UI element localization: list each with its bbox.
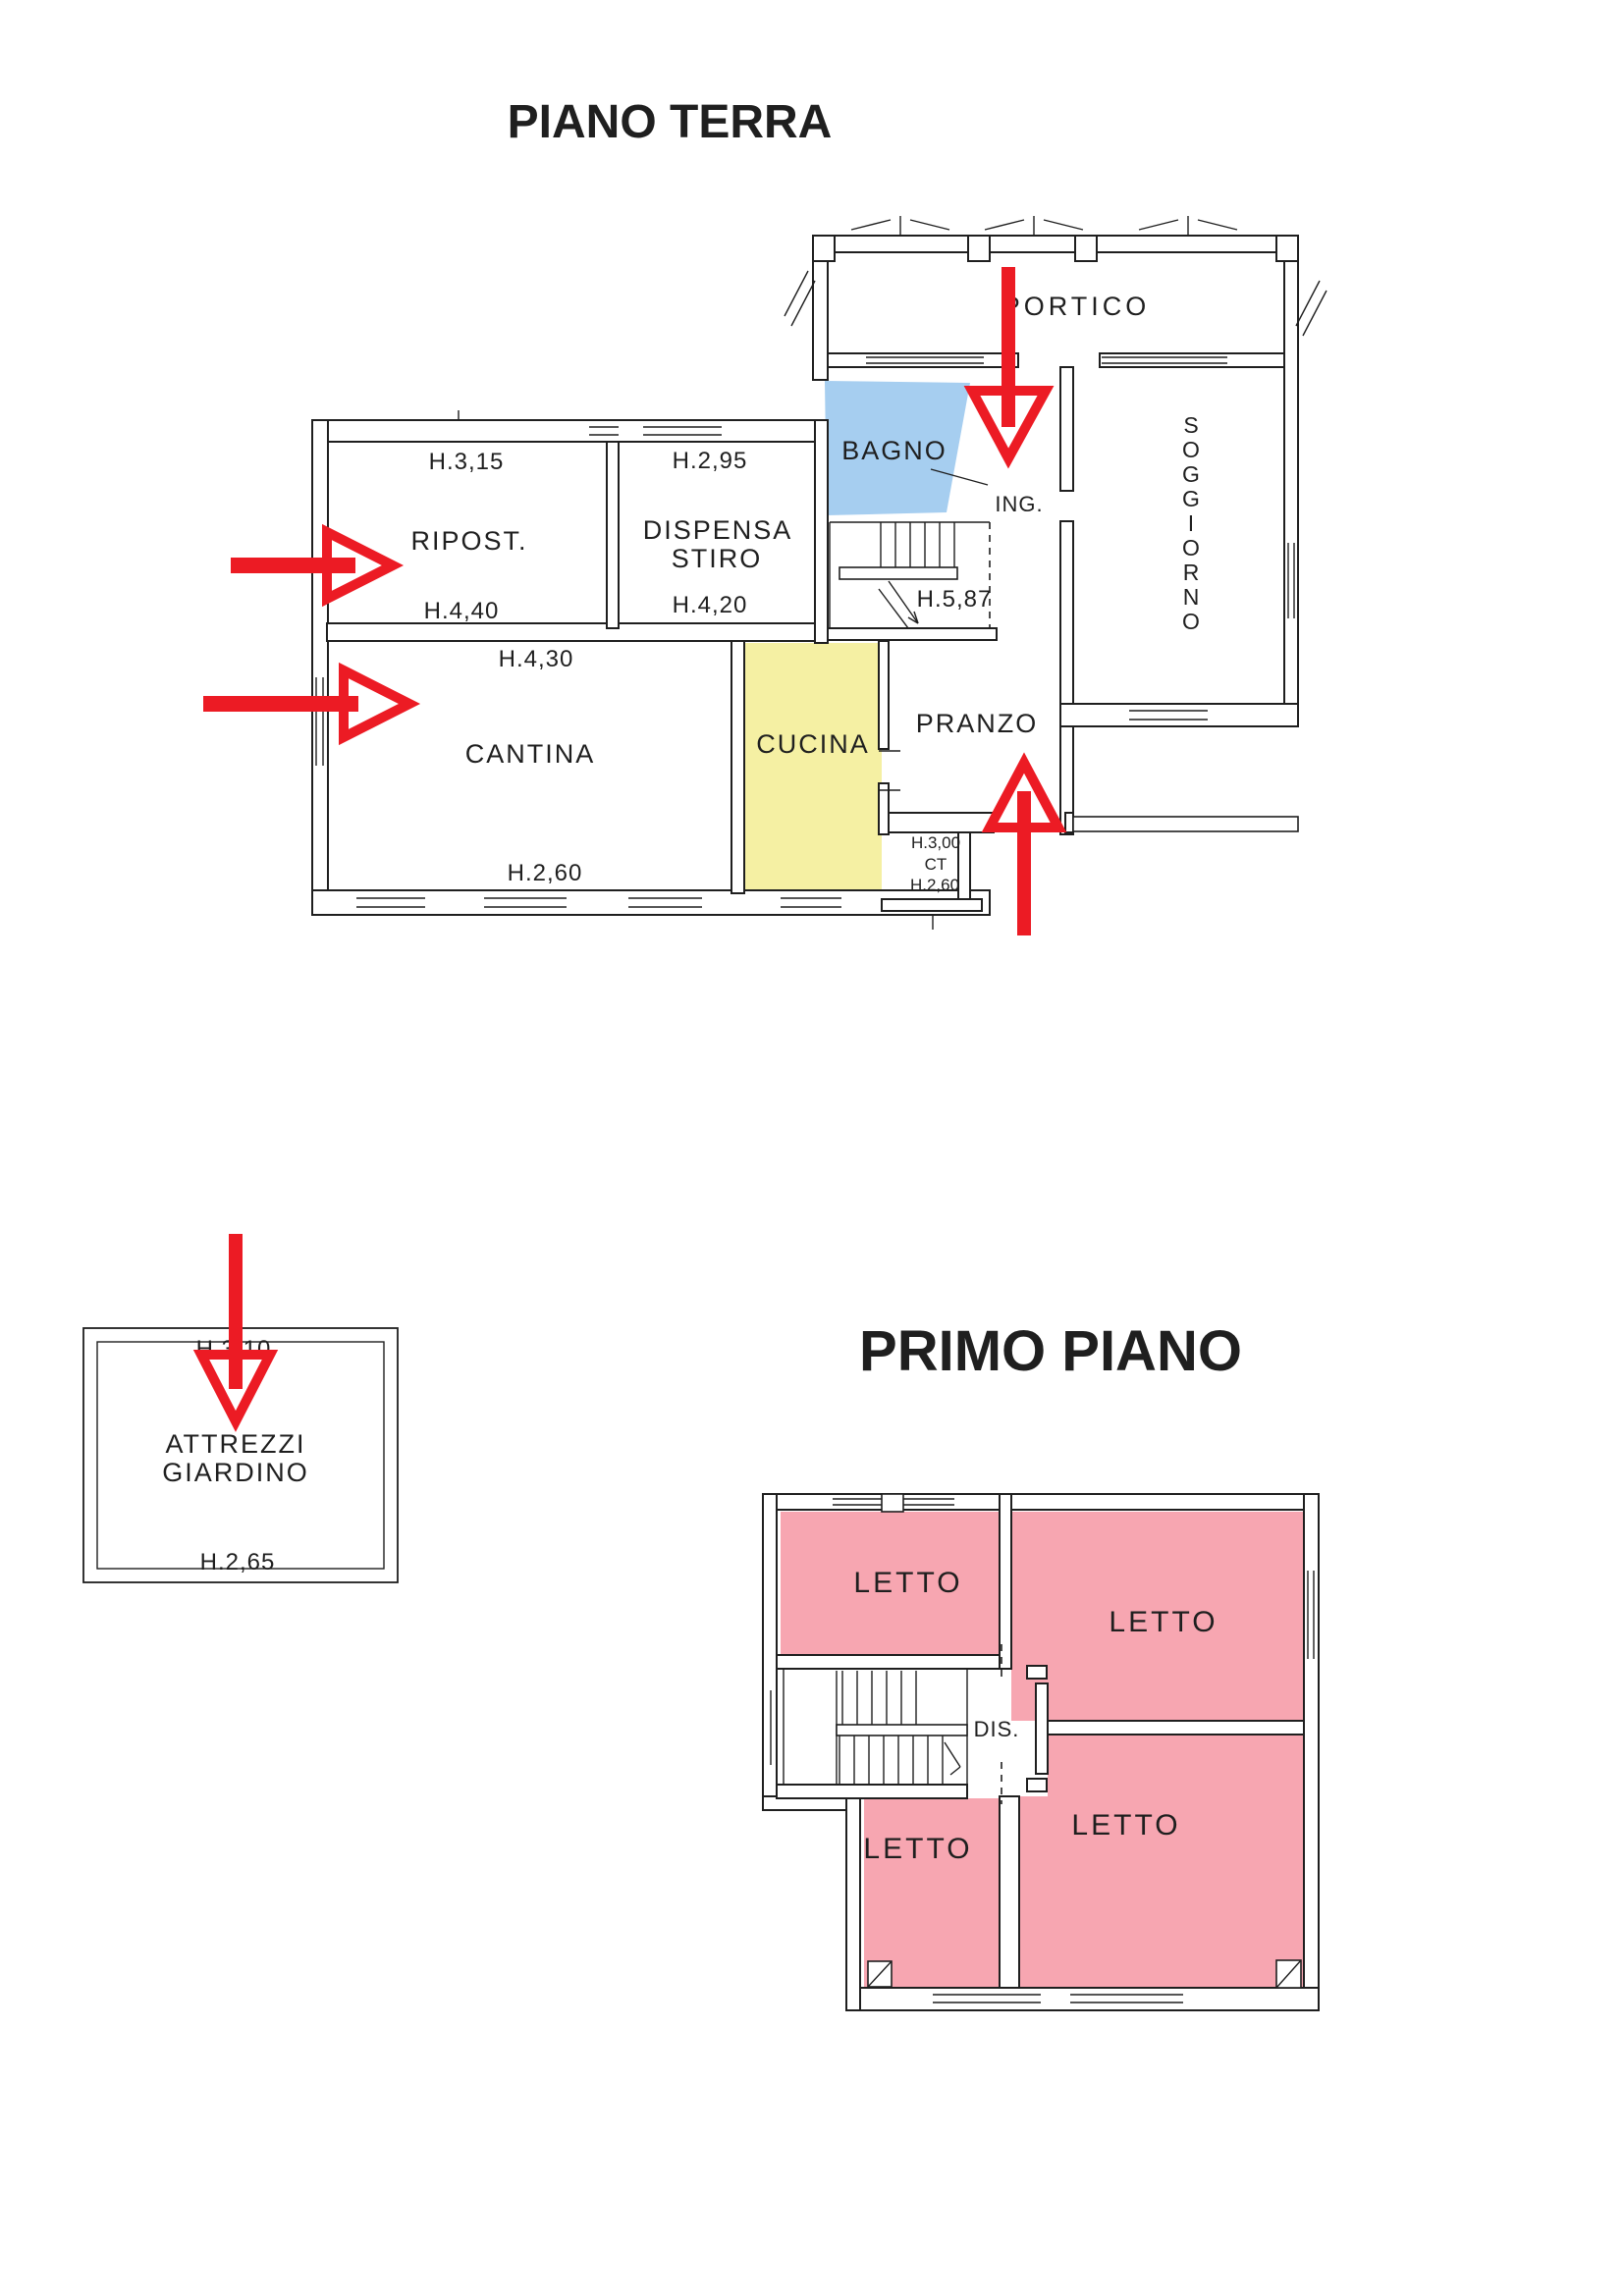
ripostiglio-label: RIPOST. xyxy=(410,526,527,556)
svg-text:G: G xyxy=(1182,486,1200,511)
cucina-label: CUCINA xyxy=(756,729,870,759)
cantina-label: CANTINA xyxy=(465,739,596,769)
staircase-ground xyxy=(828,522,997,640)
ground-floor-title: PIANO TERRA xyxy=(508,96,833,148)
svg-text:O: O xyxy=(1182,535,1200,561)
first-floor-plan: LETTO LETTO LETTO LETTO DIS. xyxy=(763,1494,1319,2010)
ct-height-top: H.3,00 xyxy=(911,833,960,852)
disimpegno-label: DIS. xyxy=(974,1717,1020,1741)
arrow-pranzo-up xyxy=(990,763,1058,935)
shed-height-bottom: H.2,65 xyxy=(200,1549,276,1575)
letto-nw-label: LETTO xyxy=(853,1567,962,1599)
portico-label: PORTICO xyxy=(1002,292,1151,321)
letto-ne-label: LETTO xyxy=(1109,1606,1218,1638)
shed-label-line1: ATTREZZI xyxy=(166,1429,306,1459)
letto-se-fill xyxy=(1019,1735,1304,1988)
ripostiglio-height-top: H.3,15 xyxy=(429,449,505,475)
svg-text:O: O xyxy=(1182,437,1200,462)
bagno-label: BAGNO xyxy=(841,436,947,465)
dispensa-height-bottom: H.4,20 xyxy=(673,592,748,618)
pranzo-label: PRANZO xyxy=(916,709,1039,738)
letto-sw-fill xyxy=(864,1798,1000,1988)
shed-label-line2: GIARDINO xyxy=(162,1458,309,1487)
dispensa-label-line1: DISPENSA xyxy=(643,515,793,545)
dispensa-label-line2: STIRO xyxy=(672,544,763,573)
svg-text:R: R xyxy=(1183,560,1200,585)
cantina-height-top: H.4,30 xyxy=(499,646,574,672)
stair-landing xyxy=(837,1725,967,1735)
svg-text:N: N xyxy=(1183,584,1200,610)
ingresso-label: ING. xyxy=(995,492,1043,516)
svg-text:G: G xyxy=(1182,461,1200,487)
svg-text:S: S xyxy=(1183,412,1198,438)
svg-text:O: O xyxy=(1182,609,1200,634)
floorplan-page: PIANO TERRA PRIMO PIANO xyxy=(0,0,1624,2296)
ct-height-bottom: H.2,60 xyxy=(910,876,959,894)
letto-sw-label: LETTO xyxy=(863,1833,972,1865)
stairs-height-label: H.5,87 xyxy=(917,586,993,613)
arrow-cantina xyxy=(203,670,409,737)
cantina-height-bottom: H.2,60 xyxy=(508,860,583,886)
ground-floor-plan: PORTICO BAGNO ING. S O G G I O R N O H.3… xyxy=(312,216,1326,930)
cucina-room-fill xyxy=(744,643,882,895)
ct-label: CT xyxy=(925,855,947,874)
letto-se-label: LETTO xyxy=(1071,1809,1180,1842)
ripostiglio-height-bottom: H.4,40 xyxy=(424,598,500,624)
living-area-windows xyxy=(1129,543,1294,720)
soggiorno-label: S O G G I O R N O xyxy=(1182,412,1200,634)
svg-text:I: I xyxy=(1188,510,1194,536)
first-floor-title: PRIMO PIANO xyxy=(859,1319,1242,1383)
dispensa-height-top: H.2,95 xyxy=(673,448,748,474)
